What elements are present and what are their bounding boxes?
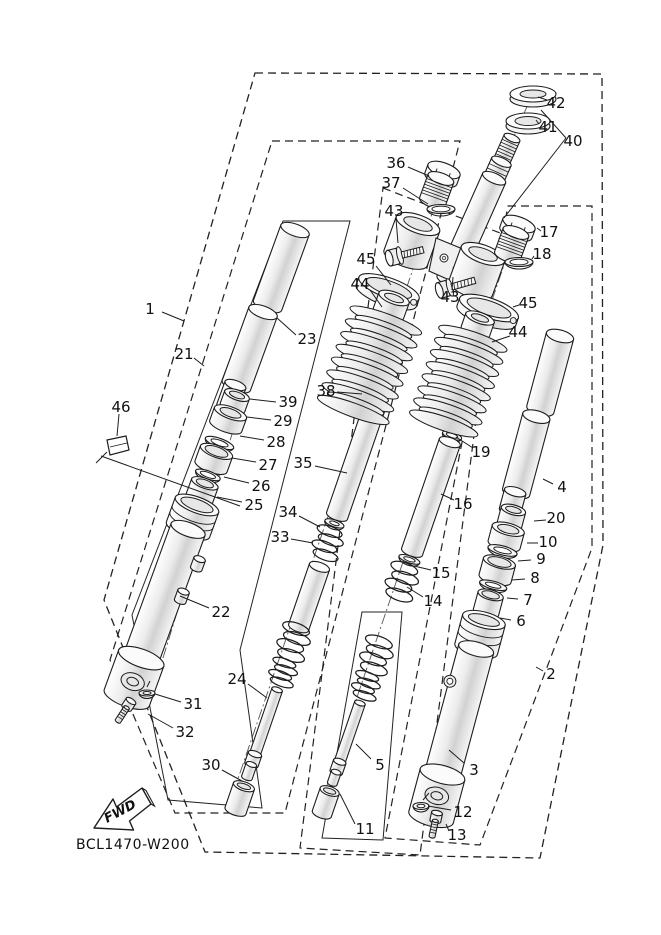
callout-c29: 29 xyxy=(273,412,292,430)
callout-c44a: 44 xyxy=(350,275,369,293)
callout-c14: 14 xyxy=(423,592,442,610)
callout-c37: 37 xyxy=(381,174,400,192)
callout-c32: 32 xyxy=(175,723,194,741)
callout-c11: 11 xyxy=(355,820,374,838)
callout-c24: 24 xyxy=(227,670,246,688)
callout-c35: 35 xyxy=(293,454,312,472)
callout-c34: 34 xyxy=(278,503,297,521)
callout-c38: 38 xyxy=(316,382,335,400)
callout-c28: 28 xyxy=(266,433,285,451)
callout-c45a: 45 xyxy=(356,250,375,268)
part-inner-tube-left xyxy=(213,219,312,418)
callout-c5: 5 xyxy=(375,756,385,774)
callout-c36: 36 xyxy=(386,154,405,172)
callout-c15: 15 xyxy=(431,564,450,582)
callout-c19: 19 xyxy=(471,443,490,461)
callout-c45b: 45 xyxy=(518,294,537,312)
callout-c43a: 43 xyxy=(384,202,403,220)
callout-c17: 17 xyxy=(539,223,558,241)
part-seal-stack-and-case-left xyxy=(101,382,264,715)
callout-c13: 13 xyxy=(447,826,466,844)
callout-c10: 10 xyxy=(538,533,557,551)
callout-c21: 21 xyxy=(174,345,193,363)
callout-c23: 23 xyxy=(297,330,316,348)
callout-c6: 6 xyxy=(516,612,526,630)
callout-c31: 31 xyxy=(183,695,202,713)
callout-c7: 7 xyxy=(523,591,533,609)
callout-c27: 27 xyxy=(258,456,277,474)
part-damper-rod-left xyxy=(219,382,396,820)
callout-c42: 42 xyxy=(546,94,565,112)
callout-c43b: 43 xyxy=(440,288,459,306)
callout-c46: 46 xyxy=(111,398,130,416)
callout-c12: 12 xyxy=(453,803,472,821)
callout-c3: 3 xyxy=(469,761,479,779)
parts-diagram-page: 1214623392928272625223132243036374345444… xyxy=(0,0,661,935)
callout-c16: 16 xyxy=(453,495,472,513)
callout-c39: 39 xyxy=(278,393,297,411)
exploded-parts-diagram: 1214623392928272625223132243036374345444… xyxy=(0,0,661,935)
callout-c20: 20 xyxy=(546,509,565,527)
callout-c30: 30 xyxy=(201,756,220,774)
callout-c44b: 44 xyxy=(508,323,527,341)
callout-c40: 40 xyxy=(563,132,582,150)
callout-c9: 9 xyxy=(536,550,546,568)
fwd-arrow: FWD xyxy=(94,788,155,830)
callout-c41: 41 xyxy=(538,118,557,136)
callout-c18: 18 xyxy=(532,245,551,263)
drawing-code: BCL1470-W200 xyxy=(76,837,190,853)
callout-c25: 25 xyxy=(244,496,263,514)
callout-c22: 22 xyxy=(211,603,230,621)
callout-c8: 8 xyxy=(530,569,540,587)
callout-c33: 33 xyxy=(270,528,289,546)
callout-c1: 1 xyxy=(145,300,155,318)
callout-c26: 26 xyxy=(251,477,270,495)
callout-c2: 2 xyxy=(546,665,556,683)
callout-c4: 4 xyxy=(557,478,567,496)
